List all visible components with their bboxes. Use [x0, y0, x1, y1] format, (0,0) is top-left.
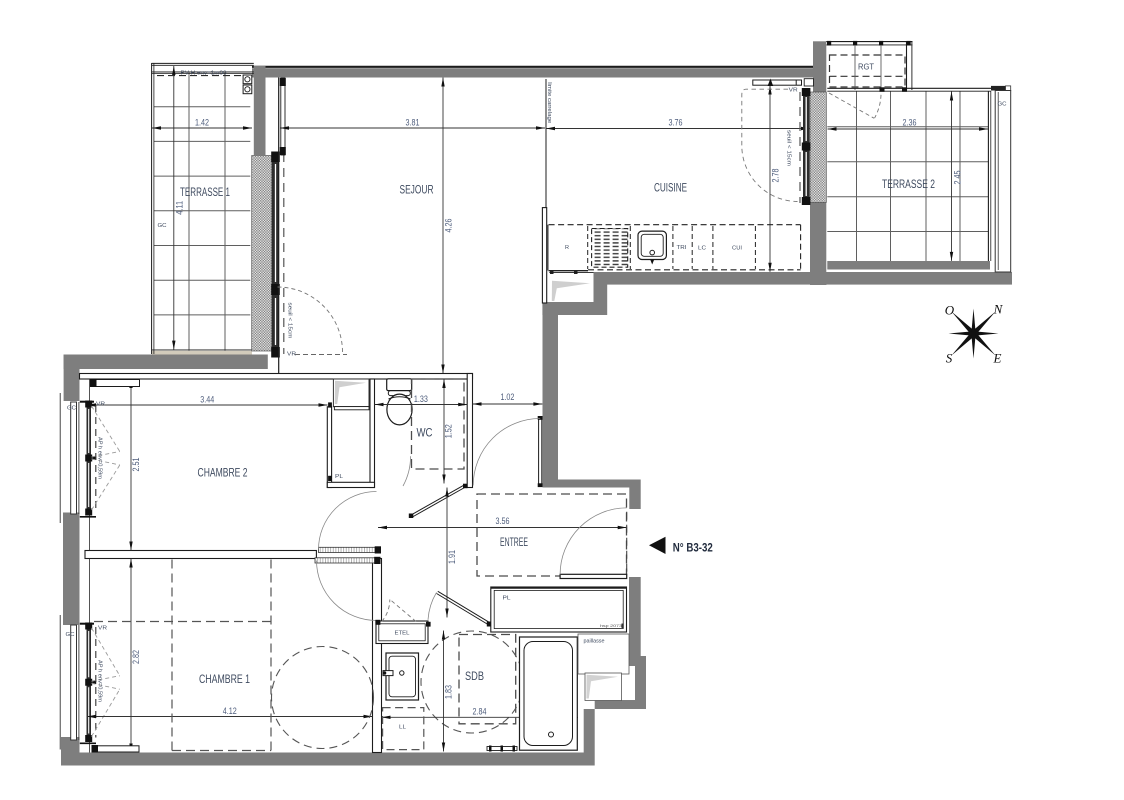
svg-text:2.84: 2.84	[473, 707, 487, 717]
svg-text:N° B3-32: N° B3-32	[673, 541, 713, 555]
svg-text:4.26: 4.26	[444, 218, 454, 232]
svg-text:RGT: RGT	[858, 62, 874, 71]
svg-text:AP h env=0,59m: AP h env=0,59m	[96, 437, 102, 479]
svg-text:2.51: 2.51	[131, 457, 141, 471]
svg-text:ETEL: ETEL	[395, 631, 410, 637]
svg-text:GC: GC	[158, 223, 167, 229]
svg-text:2.82: 2.82	[131, 650, 141, 664]
svg-text:CUISINE: CUISINE	[654, 181, 687, 195]
svg-text:seuil < 15cm: seuil < 15cm	[287, 303, 293, 339]
svg-text:4.12: 4.12	[223, 706, 237, 716]
svg-text:1.52: 1.52	[444, 424, 454, 438]
svg-text:VR: VR	[98, 625, 107, 631]
svg-text:1.83: 1.83	[443, 685, 453, 699]
svg-text:1.91: 1.91	[447, 550, 457, 564]
svg-text:2.36: 2.36	[903, 118, 917, 128]
svg-text:GC: GC	[67, 405, 76, 411]
svg-text:LL: LL	[399, 724, 406, 730]
svg-text:3.44: 3.44	[200, 395, 214, 405]
svg-text:SEJOUR: SEJOUR	[400, 183, 434, 197]
svg-text:seuil < 15cm: seuil < 15cm	[786, 130, 792, 166]
svg-text:PV H env=1m00: PV H env=1m00	[181, 71, 227, 77]
svg-text:3.56: 3.56	[496, 516, 510, 526]
svg-text:1.02: 1.02	[500, 392, 514, 402]
svg-text:SDB: SDB	[465, 669, 484, 683]
svg-text:LC: LC	[698, 245, 706, 251]
svg-text:hsp 2073: hsp 2073	[600, 623, 623, 628]
svg-text:VR: VR	[96, 401, 105, 407]
svg-text:AP h env=0,59m: AP h env=0,59m	[96, 660, 102, 702]
svg-text:S: S	[946, 351, 953, 366]
svg-text:1.33: 1.33	[414, 394, 428, 404]
svg-text:limite carrelage: limite carrelage	[546, 82, 552, 123]
svg-text:PL: PL	[503, 595, 511, 601]
svg-text:VR: VR	[789, 88, 798, 94]
svg-text:ENTREE: ENTREE	[500, 535, 528, 549]
svg-text:WC: WC	[417, 426, 433, 440]
svg-text:2.78: 2.78	[771, 168, 781, 182]
svg-text:TERRASSE 1: TERRASSE 1	[180, 185, 230, 199]
svg-text:GC: GC	[66, 632, 75, 638]
svg-text:TERRASSE 2: TERRASSE 2	[882, 177, 935, 191]
svg-text:2.45: 2.45	[953, 170, 963, 184]
svg-text:O: O	[945, 303, 955, 318]
svg-text:CHAMBRE 2: CHAMBRE 2	[198, 466, 248, 480]
svg-text:GC: GC	[998, 101, 1007, 107]
svg-text:TRI: TRI	[677, 245, 687, 251]
svg-text:E: E	[993, 351, 1002, 366]
svg-text:R: R	[565, 245, 569, 251]
svg-text:N: N	[993, 302, 1004, 317]
svg-text:PL: PL	[335, 474, 343, 480]
svg-text:4.11: 4.11	[174, 201, 184, 215]
svg-text:3.76: 3.76	[669, 118, 683, 128]
svg-text:paillasse: paillasse	[584, 638, 605, 644]
svg-text:1.42: 1.42	[195, 117, 209, 127]
svg-text:CUI: CUI	[732, 245, 742, 251]
svg-text:3.81: 3.81	[406, 117, 420, 127]
svg-text:CHAMBRE 1: CHAMBRE 1	[199, 672, 250, 686]
svg-text:VR: VR	[287, 352, 296, 358]
